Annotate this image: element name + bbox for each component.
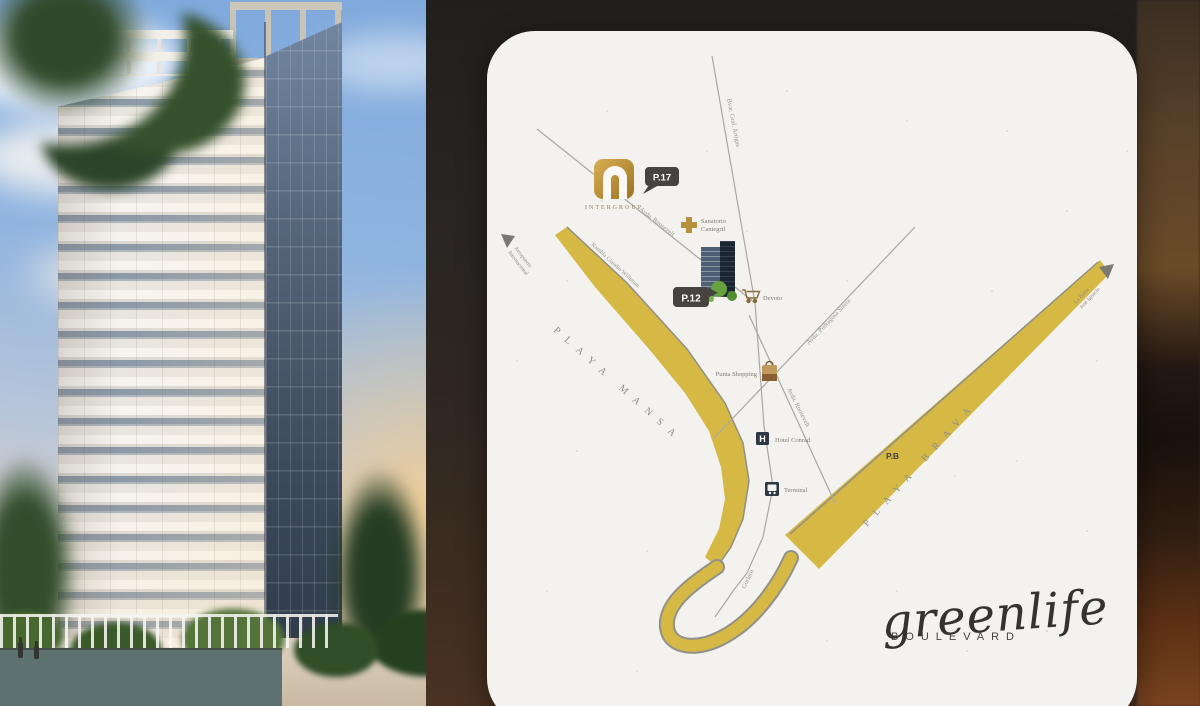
poi-terminal: Terminal: [765, 482, 808, 496]
interior-photo-edge: [1137, 0, 1200, 706]
playa-brava-beach: [785, 260, 1110, 569]
badge-p17-label: P.17: [653, 173, 671, 184]
screenshot-root: Bvar. Gral. Artigas Avda. Roosevelt Avda…: [0, 0, 1200, 706]
sanatorio-label-1: Sanatorio: [701, 218, 726, 225]
hotel-label: Hotel Conrad: [775, 437, 811, 444]
peninsula: [667, 558, 791, 646]
building-photo: [0, 0, 426, 706]
hotel-icon-letter: H: [759, 434, 766, 444]
bus-wheel: [769, 492, 771, 494]
west-arrow-icon: [501, 234, 515, 248]
badge-p12-label: P.12: [681, 294, 701, 305]
bag-icon-lower: [762, 374, 777, 381]
white-fence: [0, 614, 338, 648]
intergroup-label: INTERGROUP: [585, 205, 643, 211]
direction-west: Aeropuerto Internacional: [501, 234, 535, 277]
rambla-brava-road: [790, 262, 1098, 534]
poi-devoto: Devoto: [742, 290, 782, 303]
street-label: Bvar. Gral. Artigas: [725, 98, 741, 148]
poi-shopping: Punta Shopping: [716, 362, 777, 382]
intergroup-logo: INTERGROUP: [585, 159, 643, 211]
badge-p17: P.17: [643, 167, 679, 194]
poi-sanatorio: Sanatorio Cantegril: [681, 217, 726, 233]
shopping-label: Punta Shopping: [716, 371, 758, 378]
street-label: Avda. Pedragosa Sierra: [805, 297, 852, 346]
devoto-label: Devoto: [763, 295, 782, 302]
medical-cross-icon: [681, 222, 697, 228]
west-arrow-label: Aeropuerto Internacional: [507, 246, 536, 278]
poi-hotel: H Hotel Conrad: [756, 432, 811, 445]
location-map-card: Bvar. Gral. Artigas Avda. Roosevelt Avda…: [487, 31, 1137, 706]
greenlife-brand: greenlife BOULEVARD: [871, 587, 1119, 643]
terminal-label: Terminal: [784, 487, 808, 494]
pedestrian-silhouette: [18, 642, 23, 658]
sanatorio-label-2: Cantegril: [701, 226, 725, 233]
street-label: Avda. Roosevelt: [638, 206, 676, 238]
cart-icon: [742, 290, 760, 303]
road-roosevelt-lower: [749, 315, 835, 503]
pedestrian-silhouette: [34, 646, 39, 659]
bus-wheel: [773, 492, 775, 494]
reflecting-pool: [0, 648, 282, 706]
bus-icon-body: [768, 485, 777, 492]
pb-label: P.B: [886, 451, 899, 461]
